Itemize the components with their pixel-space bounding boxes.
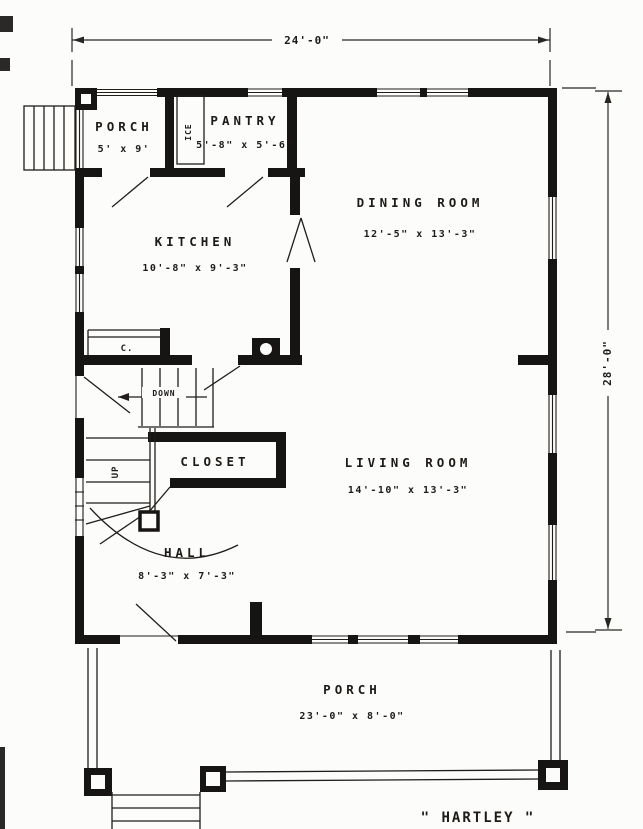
hall-name: HALL (164, 545, 210, 560)
dining-room-name: DINING ROOM (357, 195, 484, 210)
stairs-up-label: UP (111, 466, 121, 479)
side-entry-steps (24, 106, 75, 170)
dimension-right: 28'-0" (562, 88, 622, 632)
dimension-top: 24'-0" (72, 28, 550, 86)
scan-artifacts (0, 16, 13, 829)
room-labels: PORCH 5' x 9' ICE PANTRY 5'-8" x 5'-6" D… (95, 113, 483, 722)
stairs-main: UP (86, 428, 238, 558)
kitchen-dining-swing-door-left (287, 218, 301, 262)
wall-fixture (252, 338, 280, 364)
hall-dims: 8'-3" x 7'-3" (138, 571, 236, 582)
porch-kitchen-door-swing (112, 177, 148, 207)
living-room-name: LIVING ROOM (345, 455, 472, 470)
porch-bottom-dims: 23'-0" x 8'-0" (299, 711, 404, 722)
interior-walls (75, 88, 557, 635)
kitchen-name: KITCHEN (155, 234, 236, 249)
pantry-kitchen-door-swing (227, 177, 263, 207)
icebox-label: ICE (184, 123, 193, 140)
porch-top-name: PORCH (95, 119, 153, 134)
dimension-width-label: 24'-0" (284, 34, 330, 47)
kitchen-dims: 10'-8" x 9'-3" (142, 263, 247, 274)
closet-door-swing (148, 487, 170, 513)
kitchen-hall-door-swing (204, 366, 240, 390)
plan-title: " HARTLEY " (421, 810, 536, 826)
coat-closet-label: C. (121, 344, 134, 354)
stairs-down-label: DOWN (152, 389, 175, 398)
pantry-name: PANTRY (210, 113, 279, 128)
porch-top-dims: 5' x 9' (98, 144, 151, 155)
floor-plan-drawing: 24'-0" 28'-0" (0, 0, 643, 829)
wall-openings (75, 88, 558, 645)
closet-name: CLOSET (180, 454, 249, 469)
exterior-walls (75, 88, 557, 644)
floor-plan-document: 24'-0" 28'-0" (0, 0, 643, 829)
stairs-cellar: DOWN (118, 368, 214, 427)
pantry-dims: 5'-8" x 5'-6" (196, 140, 294, 151)
porch-bottom-name: PORCH (323, 682, 381, 697)
living-room-dims: 14'-10" x 13'-3" (348, 485, 468, 496)
kitchen-dining-swing-door-right (301, 218, 315, 262)
front-porch (84, 648, 568, 829)
side-entry-door-swing (84, 377, 130, 413)
porch-corner-post (75, 88, 97, 110)
dimension-height-label: 28'-0" (601, 340, 614, 386)
dining-room-dims: 12'-5" x 13'-3" (364, 229, 477, 240)
